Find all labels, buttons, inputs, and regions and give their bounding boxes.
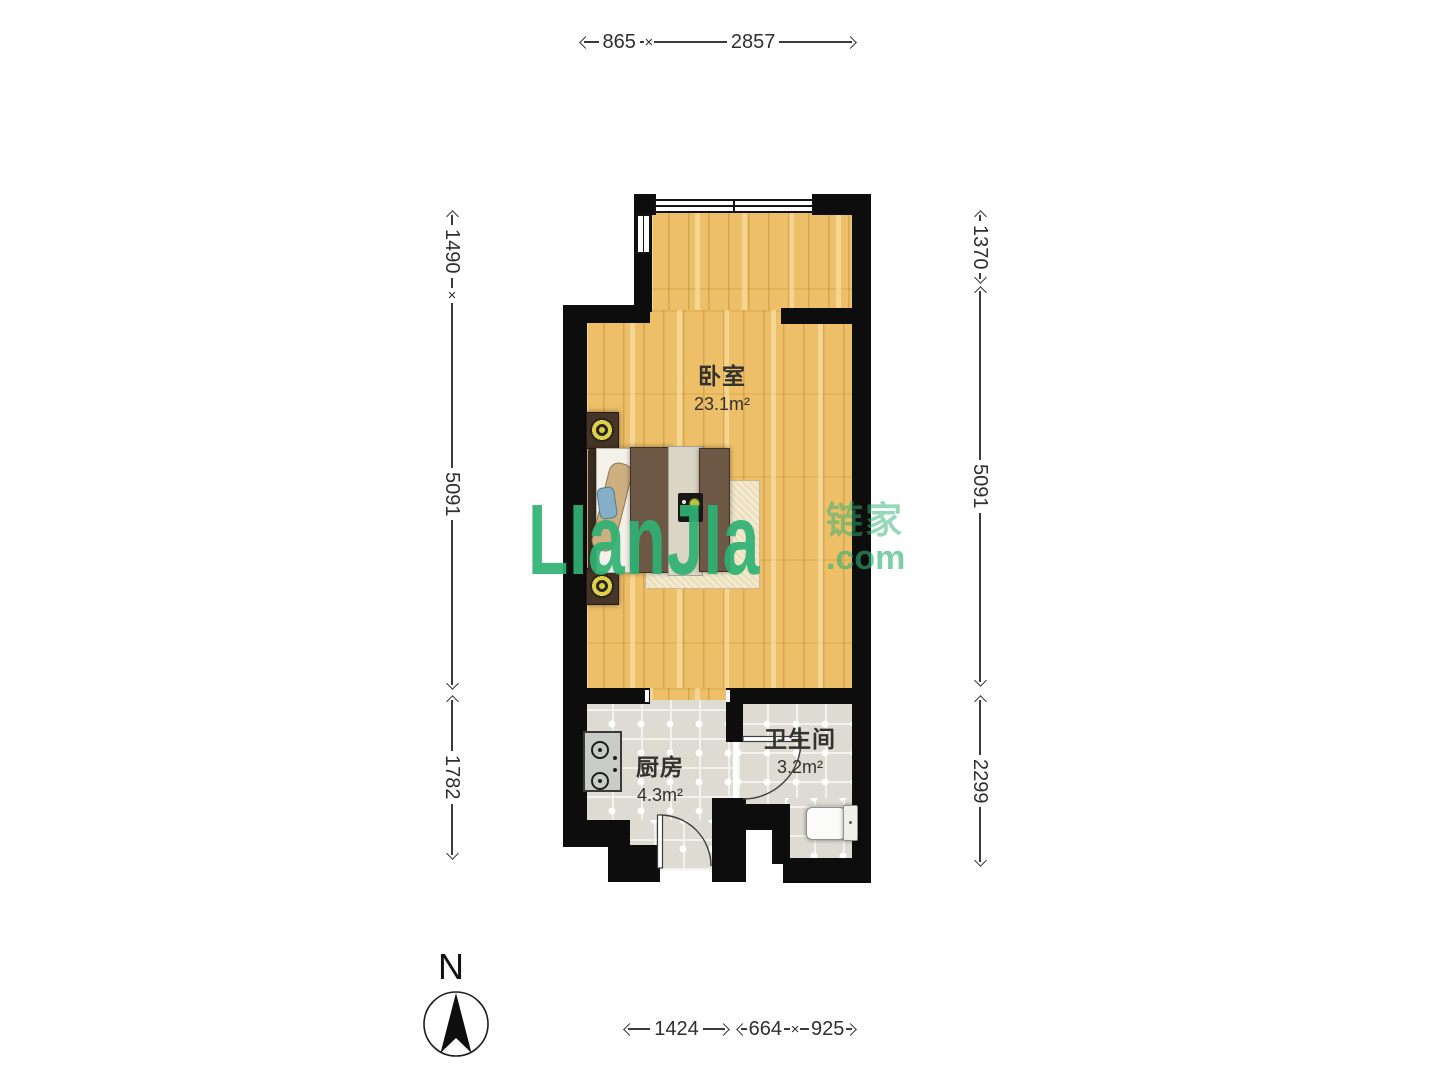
window-top: [654, 199, 814, 213]
arrowhead-icon: [974, 286, 987, 299]
nightstand: [586, 412, 619, 449]
room-name: 厨房: [600, 748, 720, 782]
dimension-right-3: 2299: [969, 697, 991, 865]
room-name: 卧室: [662, 357, 782, 391]
wall-segment: [608, 845, 660, 882]
bed-tray: [678, 493, 703, 522]
dimension-line: [451, 303, 452, 468]
dimension-bottom-1: 1424: [625, 1018, 728, 1040]
room-area: 23.1m²: [662, 394, 782, 415]
dimension-line: [979, 513, 980, 682]
bedroom-floor: [648, 205, 854, 315]
doorframe-mark: [726, 690, 730, 702]
floorplan-canvas: 卧室 23.1m² 厨房 4.3m² 卫生间 3.2m² 865 × 2857 …: [0, 0, 1440, 1080]
arrowhead-icon: [974, 854, 987, 867]
bed-duvet: [699, 448, 730, 572]
north-compass-icon: [422, 990, 490, 1058]
arrowhead-icon: [446, 847, 459, 860]
bedside-lamp-icon: [589, 417, 615, 443]
dimension-value: 5091: [970, 460, 990, 513]
dimension-line: [451, 520, 452, 685]
room-area: 3.2m²: [740, 757, 860, 778]
dimension-right-2: 5091: [969, 288, 991, 685]
room-area: 4.3m²: [600, 785, 720, 806]
dimension-value: 865: [599, 32, 640, 52]
arrowhead-icon: [844, 36, 857, 49]
arrowhead-icon: [446, 677, 459, 690]
dimension-value: 664: [747, 1019, 784, 1039]
room-label-kitchen: 厨房 4.3m²: [600, 748, 720, 806]
dimension-value: 1424: [650, 1019, 703, 1039]
arrowhead-icon: [579, 36, 592, 49]
dimension-bottom-2: 664 × 925: [738, 1018, 855, 1040]
toilet: [806, 807, 846, 840]
wall-segment: [563, 688, 650, 704]
wall-segment: [781, 308, 854, 324]
room-label-bathroom: 卫生间 3.2m²: [740, 720, 860, 778]
wall-segment: [563, 820, 630, 847]
dimension-left-2: 1782: [441, 697, 463, 858]
doorframe-mark: [645, 690, 649, 702]
bed-duvet: [630, 447, 672, 573]
dimension-joint-icon: ×: [644, 35, 655, 50]
wall-segment: [852, 194, 871, 883]
compass-north-label: N: [438, 946, 464, 988]
bedroom-passage-floor: [648, 688, 728, 700]
bedside-lamp-icon: [589, 573, 615, 599]
dimension-value: 1782: [442, 751, 462, 804]
wall-segment: [770, 804, 790, 864]
dimension-value: 5091: [442, 468, 462, 521]
window-left: [636, 214, 651, 254]
dimension-line: [800, 1028, 809, 1029]
arrowhead-icon: [974, 674, 987, 687]
room-name: 卫生间: [740, 720, 860, 754]
arrowhead-icon: [446, 210, 459, 223]
dimension-joint-icon: ×: [447, 288, 458, 303]
arrowhead-icon: [446, 695, 459, 708]
dimension-value: 2299: [970, 755, 990, 808]
dimension-line: [654, 41, 727, 42]
toilet-button-icon: [849, 821, 852, 824]
dimension-value: 1490: [442, 225, 462, 278]
arrowhead-icon: [623, 1023, 636, 1036]
arrowhead-icon: [717, 1023, 730, 1036]
dimension-value: 2857: [727, 32, 780, 52]
window-mullion: [733, 201, 735, 211]
dimension-left-1: 1490 × 5091: [441, 212, 463, 688]
tray-ball-icon: [689, 498, 700, 509]
dimension-line: [779, 41, 852, 42]
nightstand: [586, 568, 619, 605]
dimension-joint-icon: ×: [790, 1022, 801, 1037]
wall-segment: [726, 688, 854, 704]
tray-dot-icon: [682, 500, 686, 504]
arrowhead-icon: [974, 695, 987, 708]
room-label-bedroom: 卧室 23.1m²: [662, 357, 782, 415]
dimension-value: 925: [809, 1019, 846, 1039]
toilet-tank: [843, 805, 858, 841]
wall-notch: [750, 830, 772, 884]
dimension-top: 865 × 2857: [581, 31, 855, 53]
dimension-line: [979, 291, 980, 460]
dimension-right-1: 1370: [969, 212, 991, 282]
window-glass-line: [643, 216, 644, 252]
dimension-value: 1370: [970, 221, 990, 274]
wall-segment: [783, 858, 871, 883]
wall-segment: [712, 798, 746, 882]
